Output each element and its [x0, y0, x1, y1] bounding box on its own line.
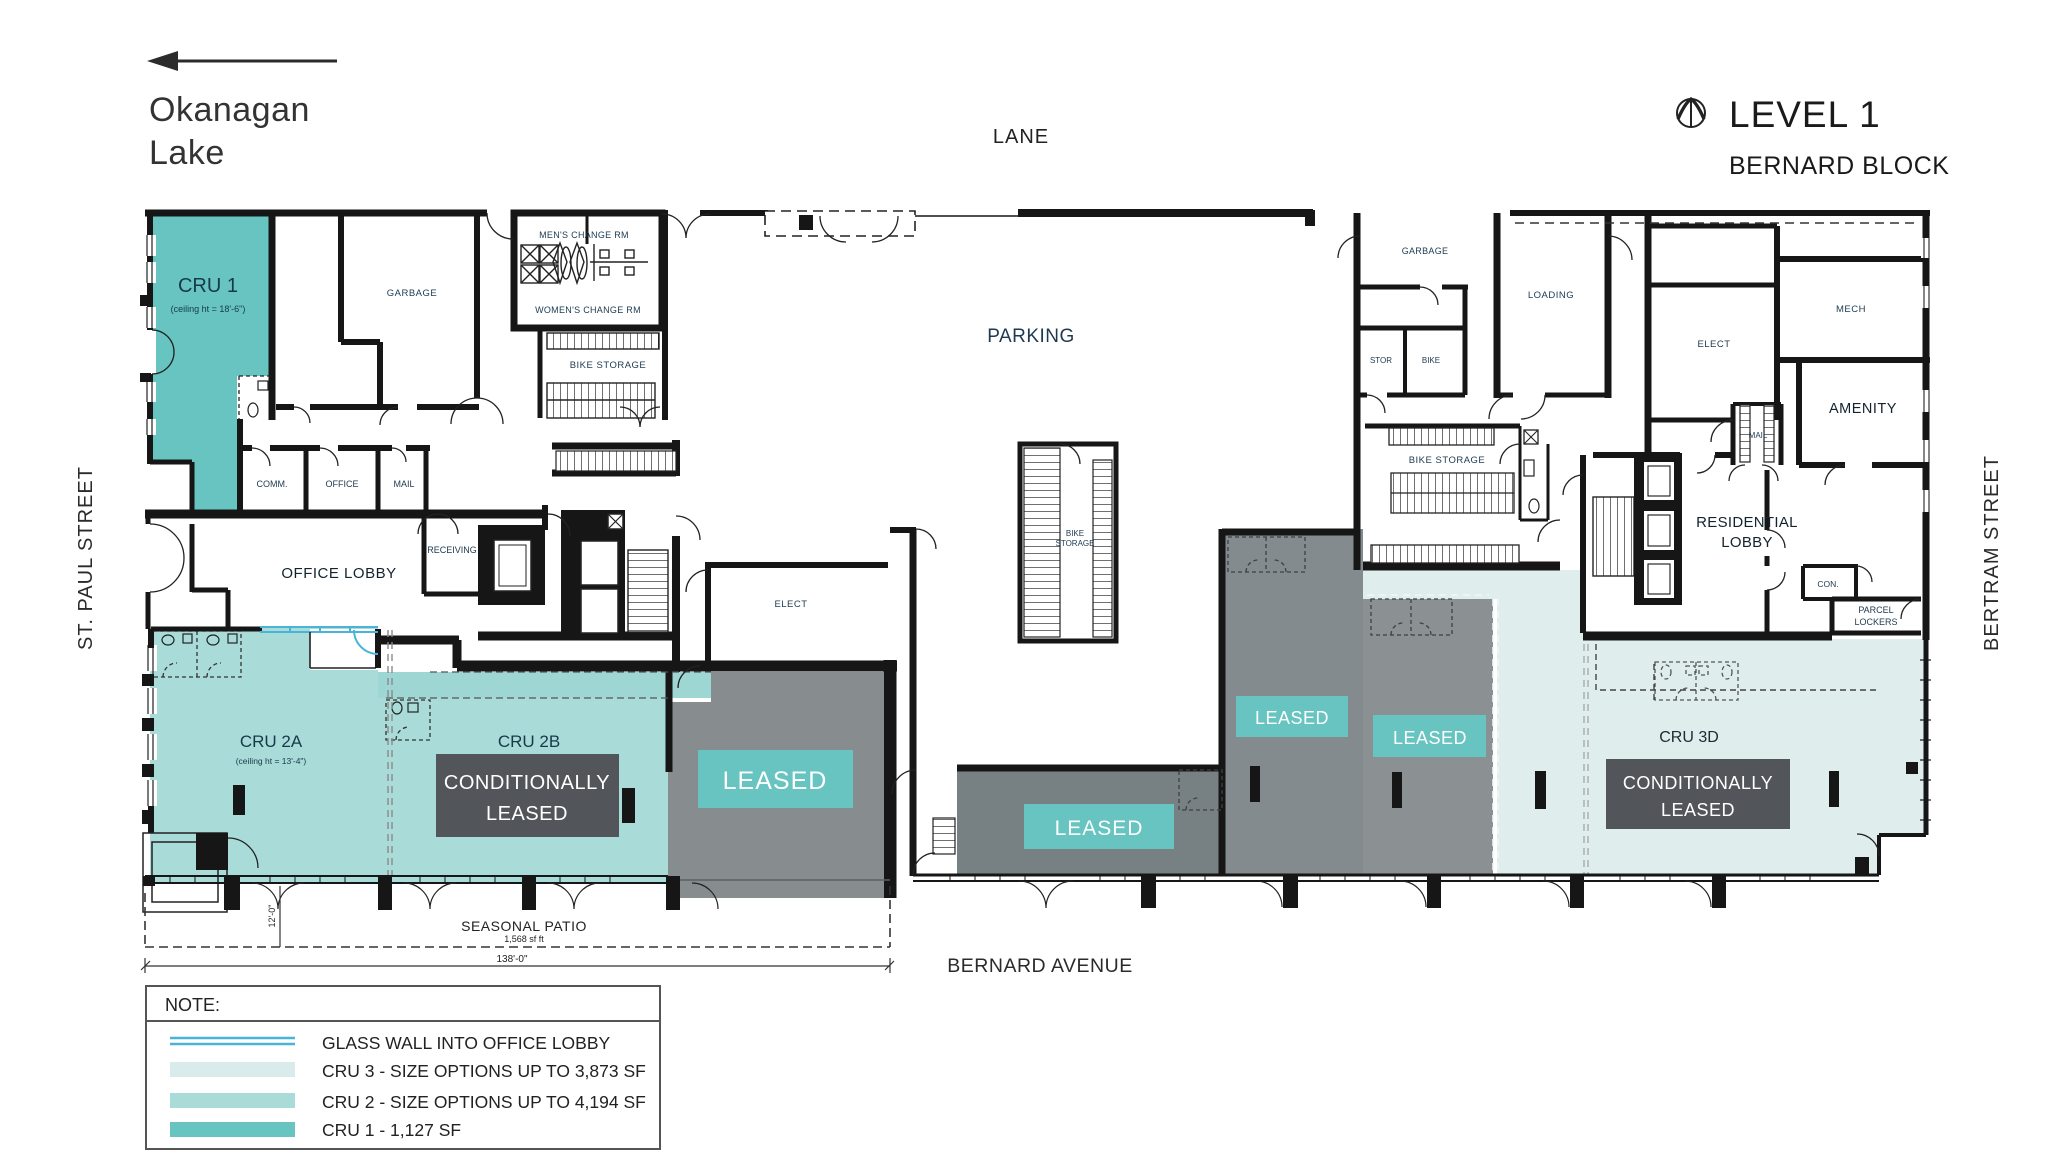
svg-text:ELECT: ELECT: [1697, 339, 1730, 350]
svg-text:LANE: LANE: [993, 126, 1049, 148]
svg-text:CRU 2A: CRU 2A: [240, 732, 303, 751]
svg-text:CRU 3D: CRU 3D: [1659, 729, 1719, 746]
svg-text:WOMEN'S CHANGE RM: WOMEN'S CHANGE RM: [535, 305, 641, 315]
svg-text:Lake: Lake: [149, 134, 225, 172]
svg-text:GLASS WALL INTO OFFICE LOBBY: GLASS WALL INTO OFFICE LOBBY: [322, 1033, 611, 1053]
svg-text:GARBAGE: GARBAGE: [1402, 246, 1449, 256]
svg-text:LEASED: LEASED: [723, 767, 828, 795]
svg-text:1,568 sf ft: 1,568 sf ft: [504, 934, 544, 944]
svg-text:CONDITIONALLY: CONDITIONALLY: [444, 772, 610, 794]
svg-text:MECH: MECH: [1836, 304, 1866, 315]
svg-text:RECEIVING: RECEIVING: [427, 545, 477, 555]
svg-text:GARBAGE: GARBAGE: [387, 288, 438, 299]
svg-text:OFFICE LOBBY: OFFICE LOBBY: [281, 565, 396, 582]
svg-text:STOR: STOR: [1370, 356, 1392, 365]
svg-text:COMM.: COMM.: [257, 479, 288, 489]
svg-text:LEASED: LEASED: [1255, 708, 1329, 728]
svg-text:LOADING: LOADING: [1528, 290, 1574, 301]
svg-text:LEASED: LEASED: [486, 803, 568, 825]
svg-text:CRU 2B: CRU 2B: [498, 732, 560, 751]
svg-text:LOCKERS: LOCKERS: [1854, 617, 1897, 627]
svg-text:BIKE: BIKE: [1422, 356, 1440, 365]
svg-text:CONDITIONALLY: CONDITIONALLY: [1623, 773, 1773, 793]
svg-text:BIKE STORAGE: BIKE STORAGE: [1409, 455, 1486, 466]
svg-text:MAIL: MAIL: [393, 479, 414, 489]
svg-text:MEN'S CHANGE RM: MEN'S CHANGE RM: [539, 230, 629, 240]
svg-text:(ceiling ht = 18'-6"): (ceiling ht = 18'-6"): [171, 304, 246, 314]
svg-text:BERNARD AVENUE: BERNARD AVENUE: [947, 955, 1132, 977]
svg-text:RESIDENTIAL: RESIDENTIAL: [1696, 514, 1798, 531]
svg-text:BERTRAM STREET: BERTRAM STREET: [1981, 455, 2003, 651]
svg-text:STORAGE: STORAGE: [1056, 539, 1095, 548]
svg-text:LEASED: LEASED: [1055, 817, 1144, 840]
svg-text:LEVEL 1: LEVEL 1: [1729, 94, 1881, 135]
svg-text:AMENITY: AMENITY: [1829, 401, 1897, 417]
svg-text:BIKE: BIKE: [1066, 529, 1084, 538]
svg-text:MAIL: MAIL: [1749, 431, 1768, 440]
svg-text:LEASED: LEASED: [1393, 728, 1467, 748]
svg-text:LEASED: LEASED: [1661, 800, 1735, 820]
svg-text:CRU 1: CRU 1: [178, 275, 238, 297]
svg-text:BIKE STORAGE: BIKE STORAGE: [570, 360, 647, 371]
svg-text:CRU 1 - 1,127 SF: CRU 1 - 1,127 SF: [322, 1120, 461, 1140]
svg-text:NOTE:: NOTE:: [165, 995, 220, 1015]
svg-text:ELECT: ELECT: [774, 599, 807, 610]
svg-text:BERNARD BLOCK: BERNARD BLOCK: [1729, 152, 1949, 180]
svg-text:OFFICE: OFFICE: [326, 479, 359, 489]
svg-text:PARKING: PARKING: [987, 326, 1075, 347]
svg-text:CRU 2 - SIZE OPTIONS UP TO 4,1: CRU 2 - SIZE OPTIONS UP TO 4,194 SF: [322, 1092, 646, 1112]
svg-text:CON.: CON.: [1817, 579, 1838, 589]
svg-text:(ceiling ht = 13'-4"): (ceiling ht = 13'-4"): [236, 756, 307, 766]
svg-text:CRU 3 - SIZE OPTIONS UP TO 3,8: CRU 3 - SIZE OPTIONS UP TO 3,873 SF: [322, 1061, 646, 1081]
svg-text:Okanagan: Okanagan: [149, 91, 310, 129]
svg-text:PARCEL: PARCEL: [1858, 605, 1893, 615]
svg-text:12'-0": 12'-0": [267, 905, 277, 928]
svg-text:SEASONAL PATIO: SEASONAL PATIO: [461, 918, 587, 934]
svg-text:LOBBY: LOBBY: [1721, 534, 1773, 551]
svg-text:138'-0": 138'-0": [496, 954, 527, 965]
svg-text:ST. PAUL STREET: ST. PAUL STREET: [75, 466, 97, 650]
